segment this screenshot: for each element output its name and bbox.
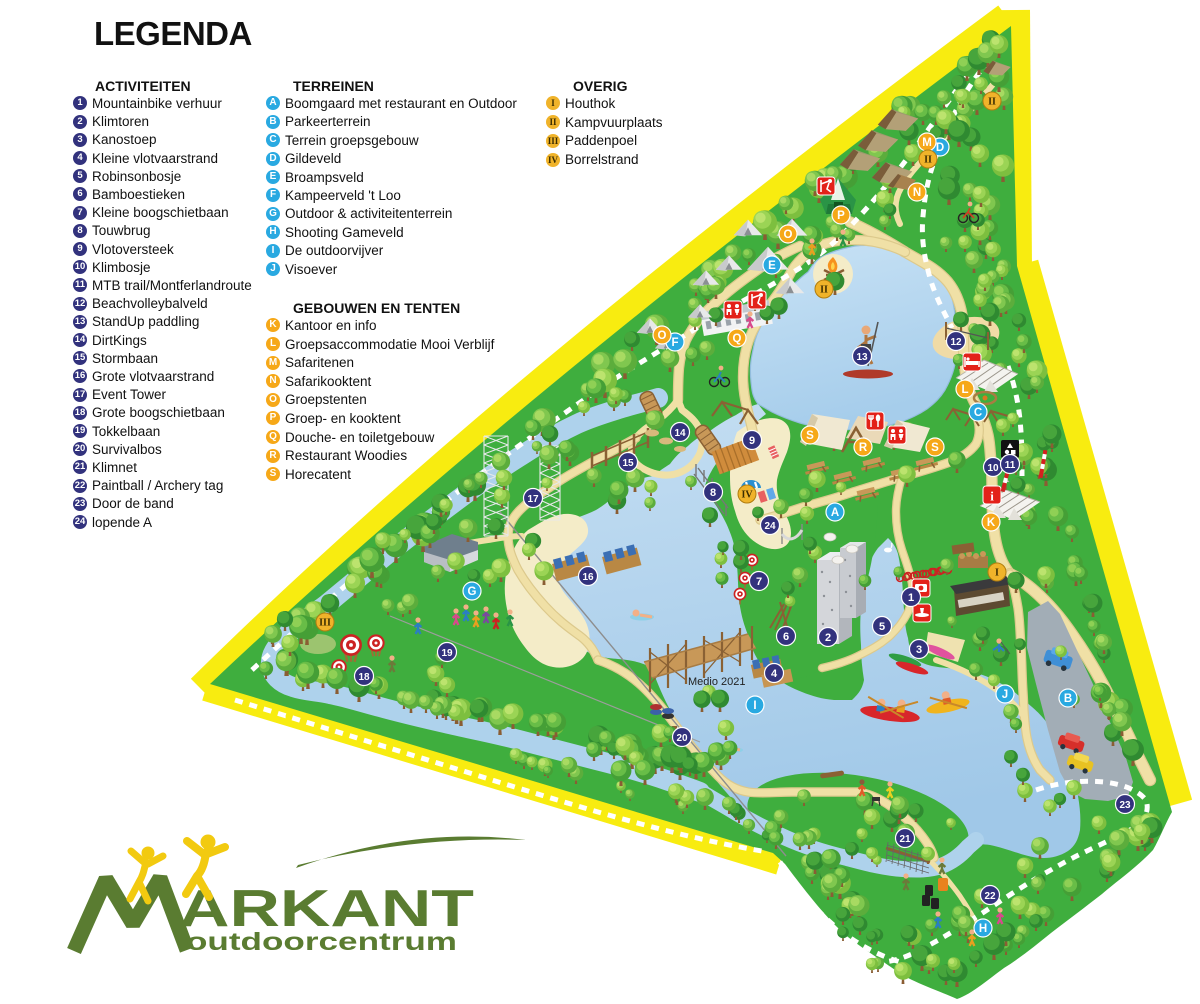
svg-text:O: O [784, 229, 793, 241]
svg-text:IV: IV [741, 490, 753, 501]
svg-text:17: 17 [527, 494, 539, 505]
svg-text:15: 15 [622, 458, 634, 469]
svg-text:14: 14 [674, 428, 686, 439]
svg-text:22: 22 [984, 891, 996, 902]
svg-text:12: 12 [950, 337, 962, 348]
svg-text:S: S [806, 430, 814, 442]
svg-text:A: A [831, 507, 839, 519]
svg-text:D: D [936, 142, 944, 154]
svg-text:B: B [1064, 693, 1072, 705]
svg-text:16: 16 [582, 572, 594, 583]
svg-text:13: 13 [856, 352, 868, 363]
svg-text:8: 8 [710, 487, 716, 499]
svg-text:Q: Q [733, 333, 742, 345]
svg-text:i: i [990, 489, 994, 504]
svg-text:II: II [924, 155, 932, 166]
svg-text:P: P [837, 210, 845, 222]
svg-text:E: E [768, 260, 776, 272]
svg-text:2: 2 [825, 632, 831, 644]
svg-text:R: R [859, 442, 868, 454]
svg-text:24: 24 [764, 521, 776, 532]
svg-text:23: 23 [1119, 800, 1131, 811]
svg-text:5: 5 [879, 621, 885, 633]
svg-text:C: C [974, 407, 982, 419]
svg-text:H: H [979, 923, 987, 935]
svg-text:9: 9 [749, 435, 755, 447]
svg-text:7: 7 [756, 576, 762, 588]
svg-text:10: 10 [987, 463, 999, 474]
svg-text:L: L [961, 384, 968, 396]
svg-text:outdoorcentrum: outdoorcentrum [186, 928, 457, 956]
svg-text:1: 1 [908, 592, 914, 604]
svg-text:19: 19 [441, 648, 453, 659]
svg-text:21: 21 [899, 834, 911, 845]
svg-text:I: I [995, 568, 999, 579]
svg-text:4: 4 [771, 668, 778, 680]
svg-text:I: I [753, 700, 756, 712]
svg-text:J: J [1002, 689, 1008, 701]
svg-text:S: S [931, 442, 939, 454]
svg-text:K: K [987, 517, 996, 529]
svg-text:3: 3 [916, 644, 922, 656]
svg-text:O: O [658, 330, 667, 342]
svg-text:N: N [913, 187, 921, 199]
svg-text:20: 20 [676, 733, 688, 744]
svg-text:11: 11 [1005, 460, 1016, 471]
svg-text:M: M [922, 137, 932, 149]
svg-text:Medio 2021: Medio 2021 [688, 676, 746, 688]
svg-text:II: II [988, 97, 996, 108]
svg-text:G: G [468, 586, 477, 598]
svg-text:18: 18 [358, 672, 370, 683]
svg-text:F: F [671, 337, 678, 349]
svg-text:6: 6 [783, 631, 789, 643]
svg-text:III: III [319, 618, 331, 629]
svg-text:II: II [820, 285, 828, 296]
